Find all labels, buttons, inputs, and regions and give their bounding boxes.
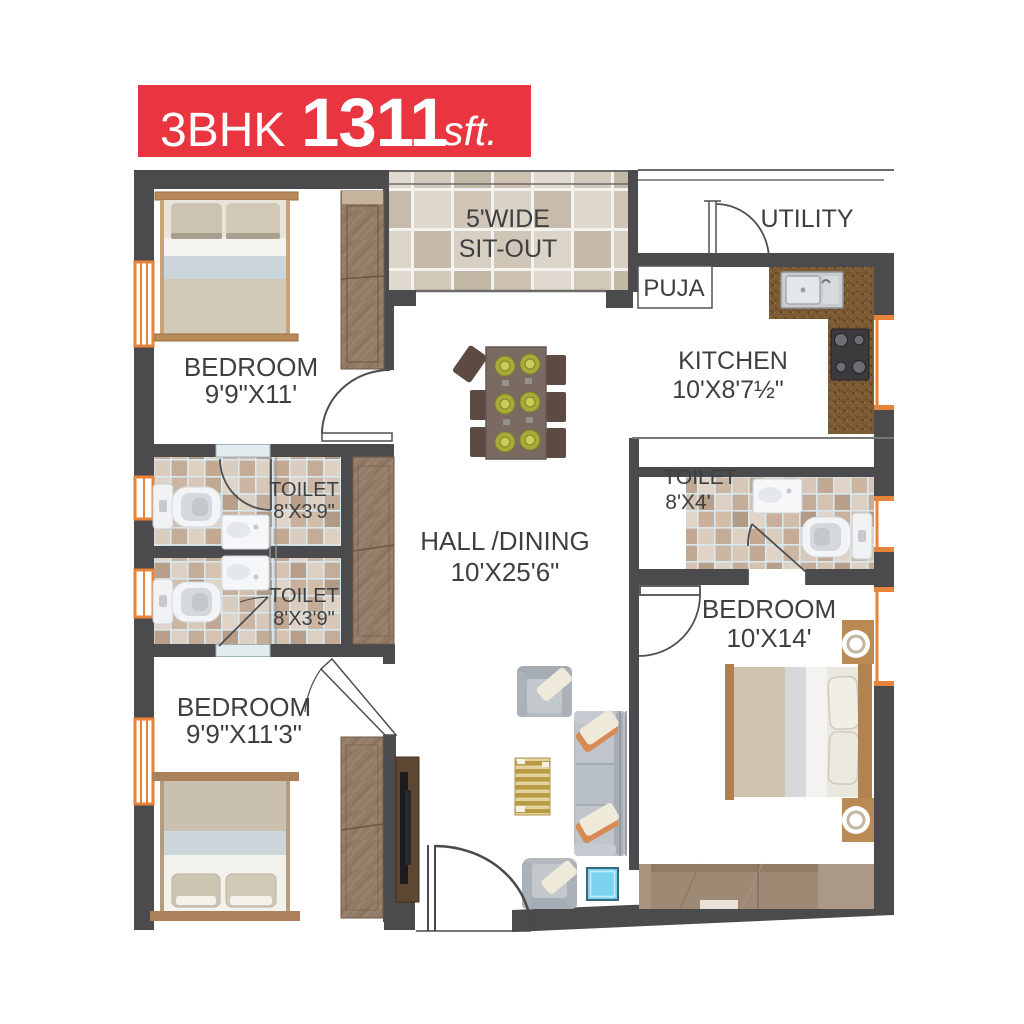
svg-text:10'X14': 10'X14' bbox=[726, 623, 811, 653]
svg-text:TOILET: TOILET bbox=[269, 585, 339, 607]
svg-text:8'X4': 8'X4' bbox=[665, 491, 710, 514]
svg-text:TOILET: TOILET bbox=[663, 466, 736, 489]
svg-text:TOILET: TOILET bbox=[269, 479, 339, 501]
svg-text:SIT-OUT: SIT-OUT bbox=[459, 235, 558, 263]
svg-text:1311: 1311 bbox=[301, 84, 447, 161]
svg-text:10'X8'7½": 10'X8'7½" bbox=[672, 376, 784, 404]
svg-text:UTILITY: UTILITY bbox=[760, 205, 853, 233]
svg-text:BEDROOM: BEDROOM bbox=[702, 594, 836, 624]
svg-text:sft.: sft. bbox=[443, 108, 498, 154]
svg-text:PUJA: PUJA bbox=[643, 275, 704, 302]
svg-text:10'X25'6": 10'X25'6" bbox=[451, 557, 560, 587]
svg-text:8'X3'9": 8'X3'9" bbox=[273, 501, 334, 523]
svg-text:9'9"X11'3": 9'9"X11'3" bbox=[186, 719, 302, 749]
svg-text:8'X3'9": 8'X3'9" bbox=[273, 608, 334, 630]
svg-text:HALL /DINING: HALL /DINING bbox=[420, 526, 590, 556]
svg-text:KITCHEN: KITCHEN bbox=[678, 347, 788, 375]
svg-text:3BHK: 3BHK bbox=[160, 104, 285, 157]
svg-text:5'WIDE: 5'WIDE bbox=[466, 205, 550, 233]
svg-text:BEDROOM: BEDROOM bbox=[184, 352, 318, 382]
svg-text:9'9"X11': 9'9"X11' bbox=[205, 379, 297, 409]
svg-text:BEDROOM: BEDROOM bbox=[177, 692, 311, 722]
